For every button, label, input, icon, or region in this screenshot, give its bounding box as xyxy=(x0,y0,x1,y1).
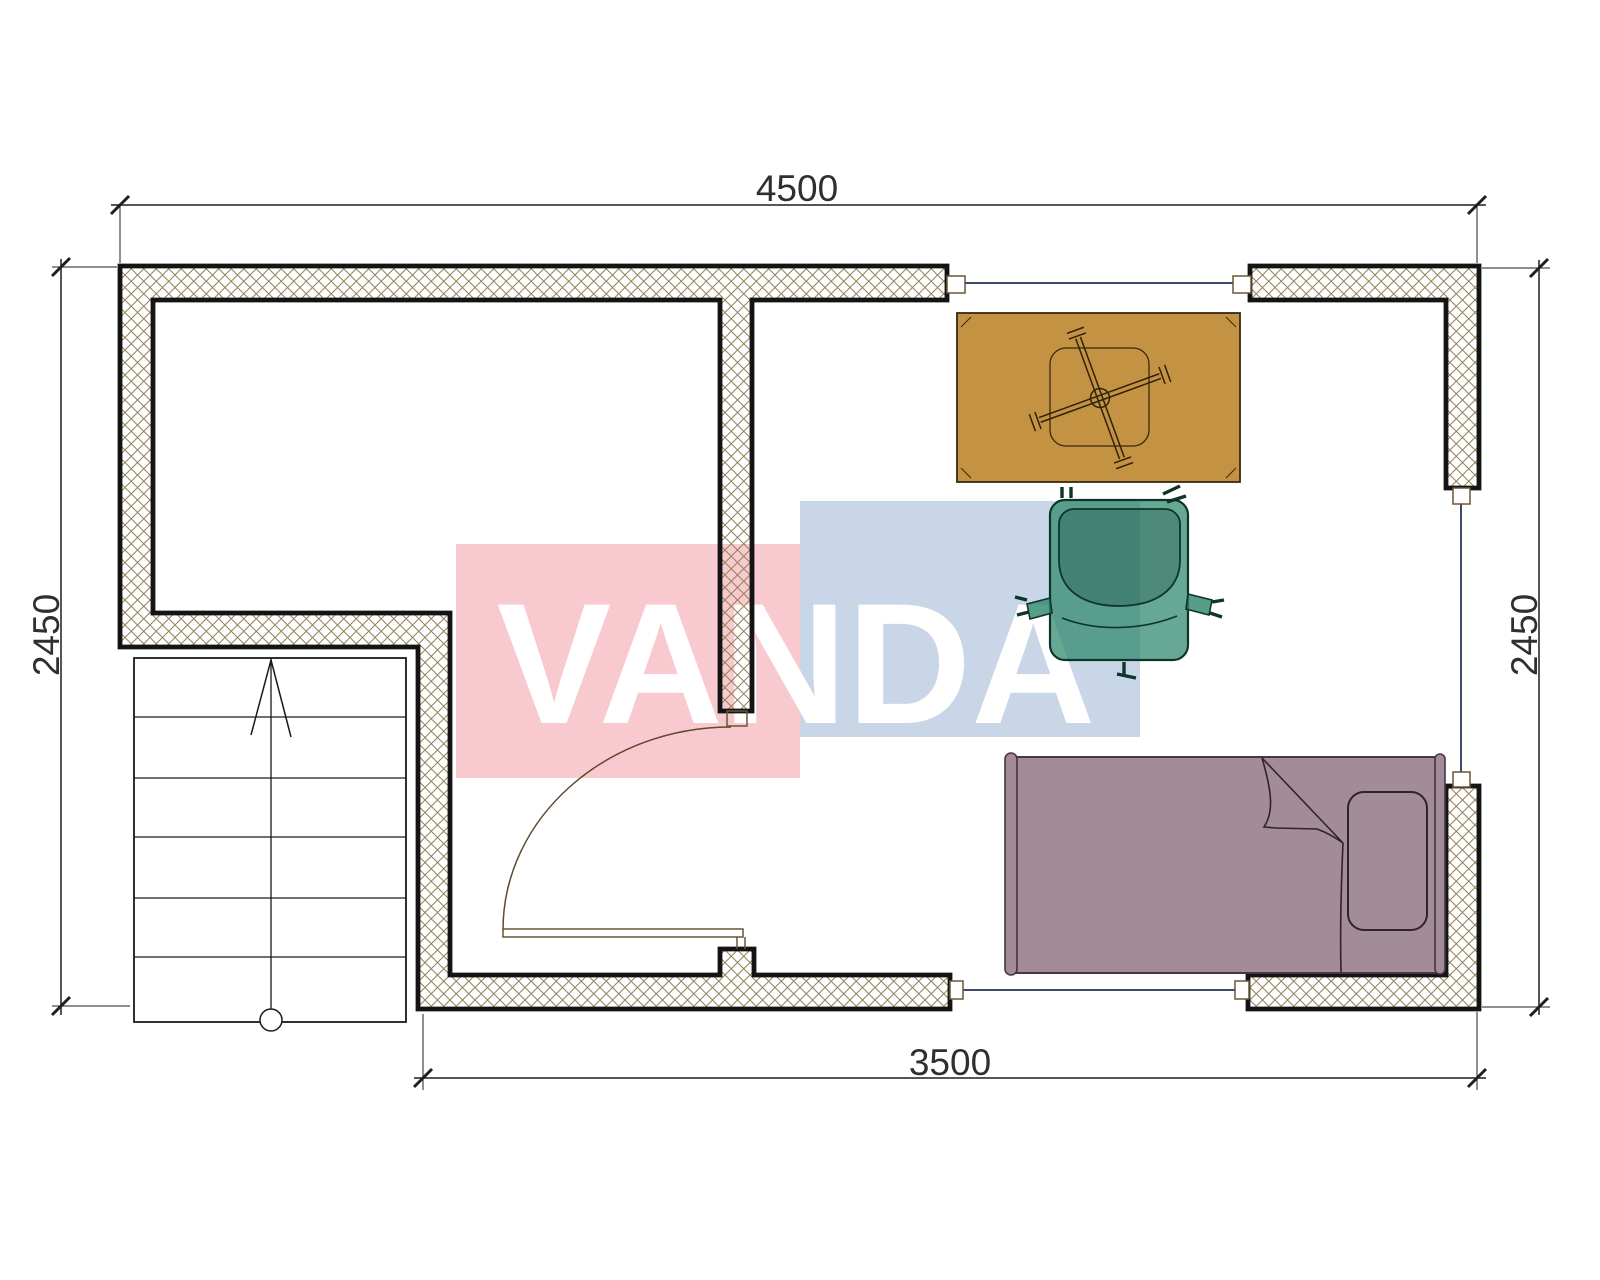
svg-text:VANDA: VANDA xyxy=(497,568,1096,760)
svg-text:2450: 2450 xyxy=(26,594,67,676)
svg-text:4500: 4500 xyxy=(756,168,838,209)
svg-text:2450: 2450 xyxy=(1504,594,1545,676)
svg-text:3500: 3500 xyxy=(909,1042,991,1083)
